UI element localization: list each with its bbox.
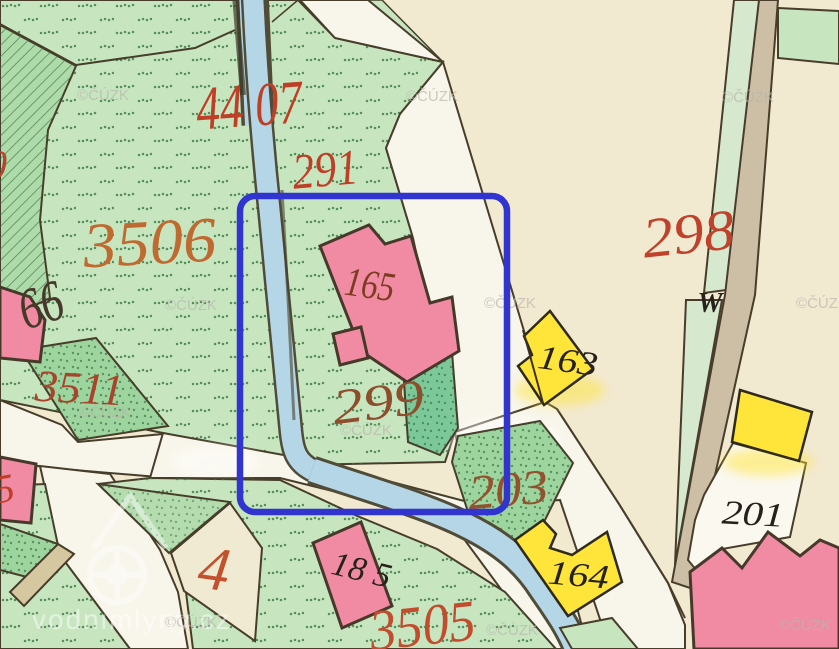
svg-text:©ČÚZK: ©ČÚZK	[779, 617, 831, 634]
svg-text:44 07: 44 07	[194, 68, 307, 143]
svg-text:vodnimlyny.cz: vodnimlyny.cz	[32, 604, 232, 635]
svg-text:298: 298	[639, 198, 737, 270]
svg-text:0: 0	[0, 142, 7, 187]
svg-text:©ČÚZK: ©ČÚZK	[406, 88, 458, 105]
svg-text:©ČÚZK: ©ČÚZK	[796, 295, 839, 312]
svg-text:©ČÚZK: ©ČÚZK	[486, 622, 538, 639]
svg-text:201: 201	[721, 494, 785, 534]
svg-text:©ČÚZK: ©ČÚZK	[722, 89, 774, 106]
svg-text:291: 291	[290, 138, 361, 200]
svg-text:W: W	[698, 288, 725, 319]
svg-text:©ČÚZK: ©ČÚZK	[79, 404, 131, 421]
svg-text:3506: 3506	[80, 203, 218, 281]
svg-text:165: 165	[342, 258, 398, 311]
svg-text:3505: 3505	[365, 588, 478, 649]
svg-text:164: 164	[546, 554, 610, 596]
svg-text:©ČÚZK: ©ČÚZK	[77, 87, 129, 104]
svg-text:©ČÚZK: ©ČÚZK	[340, 422, 392, 439]
svg-text:©ČÚZK: ©ČÚZK	[165, 297, 217, 314]
